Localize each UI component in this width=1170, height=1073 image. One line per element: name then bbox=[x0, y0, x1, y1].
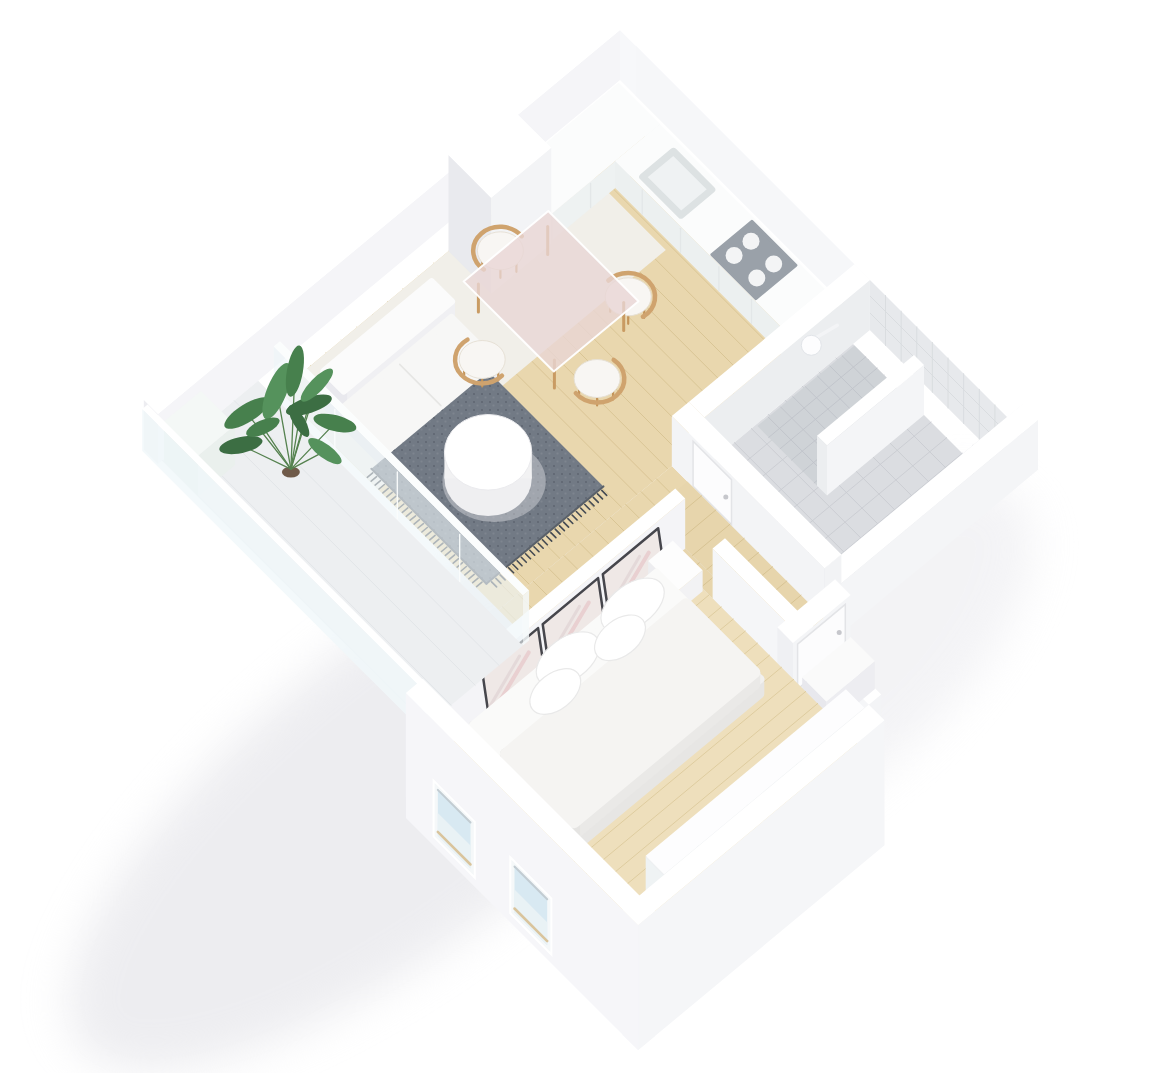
floorplan-3d-render bbox=[0, 0, 1170, 1073]
floorplan-page bbox=[0, 0, 1170, 1073]
